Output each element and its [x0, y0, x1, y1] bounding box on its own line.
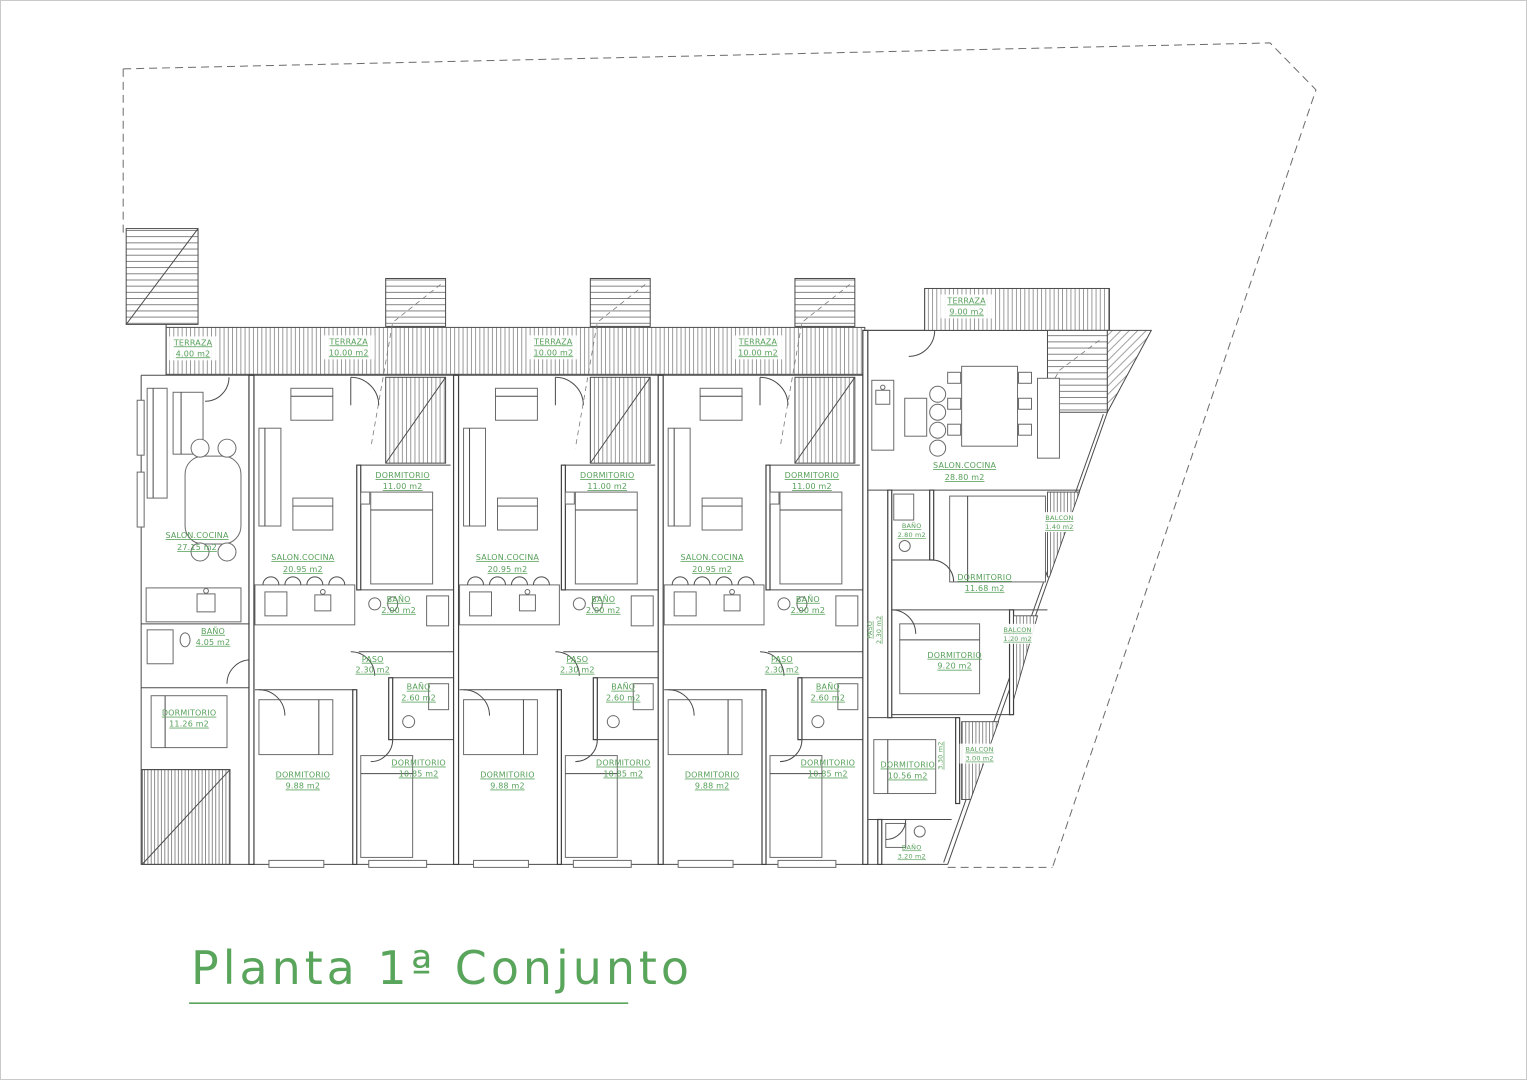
room-label-paso: PASO [771, 655, 793, 664]
salon-furniture [464, 388, 538, 530]
room-area-bano2: 2.60 m2 [401, 694, 436, 703]
bedroom-bottom-right [565, 740, 617, 858]
room-area-terraza: 9.00 m2 [949, 307, 984, 316]
room-area-bano2: 2.60 m2 [606, 694, 641, 703]
kitchen [664, 577, 764, 625]
kitchen [255, 577, 355, 625]
room-label-terraza: TERRAZA [173, 338, 213, 347]
room-label-bano1: BAÑO [387, 594, 411, 604]
window [573, 860, 631, 867]
room-area-salon: 20.95 m2 [488, 565, 528, 574]
room-label-bano2: BAÑO [816, 682, 840, 692]
room-label-dormitorio2: DORMITORIO [276, 771, 330, 780]
stair-box [795, 278, 855, 326]
room-label-salon: SALON.COCINA [271, 553, 334, 562]
page-title: Planta 1ª Conjunto [191, 941, 693, 995]
right-salon-furniture [872, 366, 1060, 458]
room-label-dormitorio3: DORMITORIO [391, 759, 445, 768]
room-label-paso: PASO [362, 655, 384, 664]
entry-door-arc [909, 330, 935, 356]
room-area-balcon3: 3.00 m2 [965, 755, 993, 763]
room-label-dormitorio2: DORMITORIO [685, 771, 739, 780]
room-area-dormitorio1: 11.68 m2 [965, 584, 1005, 593]
corridor-wall [888, 490, 892, 718]
room-label-dormitorio2: DORMITORIO [480, 771, 534, 780]
room-area-dormitorio2: 9.88 m2 [490, 782, 525, 791]
room-area-dormitorio3: 10.56 m2 [888, 772, 928, 781]
room-label-dormitorio3: DORMITORIO [801, 759, 855, 768]
room-area-dormitorio3: 10.85 m2 [399, 770, 439, 779]
room-area-dormitorio2: 9.88 m2 [695, 782, 730, 791]
window [474, 860, 529, 867]
room-area-paso: 2.30 m2 [765, 666, 800, 675]
room-label-terraza: TERRAZA [738, 337, 778, 346]
room-label-dormitorio1: DORMITORIO [785, 471, 839, 480]
room-label-dormitorio1: DORMITORIO [957, 573, 1011, 582]
room-label-bano2: BAÑO [407, 682, 431, 692]
room-area-pasillo: 3.30 m2 [937, 741, 945, 769]
bathroom [141, 624, 251, 684]
salon-furniture [668, 388, 742, 530]
room-area-salon: 20.95 m2 [692, 565, 732, 574]
unit-1: SALON.COCINA 27.15 m2 BAÑO 4.05 m2 DORMI… [141, 336, 251, 769]
room-label-salon: SALON.COCINA [476, 553, 539, 562]
room-area-paso: 2.30 m2 [560, 666, 595, 675]
room-label-terraza: TERRAZA [533, 337, 573, 346]
room-label-balcon2: BALCON [1003, 626, 1031, 634]
room-area-dormitorio1: 11.00 m2 [383, 482, 423, 491]
room-area-salon: 28.80 m2 [945, 473, 985, 482]
room-label-dormitorio: DORMITORIO [162, 709, 216, 718]
room-area-salon: 20.95 m2 [283, 565, 323, 574]
room-label-dormitorio1: DORMITORIO [375, 471, 429, 480]
room-area-dormitorio2: 9.20 m2 [937, 662, 972, 671]
room-area-terraza: 10.00 m2 [533, 348, 573, 357]
room-area-bano1: 2.80 m2 [898, 531, 926, 539]
window [137, 400, 144, 455]
stair-box [590, 278, 650, 326]
room-label-paso: PASO [866, 621, 874, 639]
entry-door-arc [760, 377, 788, 405]
room-label-dormitorio1: DORMITORIO [580, 471, 634, 480]
room-label-terraza: TERRAZA [946, 296, 986, 305]
drawing-sheet: SALON.COCINA 27.15 m2 BAÑO 4.05 m2 DORMI… [0, 0, 1527, 1080]
room-area-terraza: 4.00 m2 [176, 349, 211, 358]
room-label-paso: PASO [566, 655, 588, 664]
kitchen [146, 588, 241, 622]
room-area-bano1: 2.00 m2 [791, 606, 826, 615]
room-area-dormitorio1: 11.00 m2 [792, 482, 832, 491]
room-area-dormitorio1: 11.00 m2 [587, 482, 627, 491]
kitchen [460, 577, 560, 625]
stair-right-return [1107, 330, 1151, 412]
room-area-salon: 27.15 m2 [177, 543, 217, 552]
window [778, 860, 836, 867]
stair-bottom-left [142, 770, 230, 865]
room-label-bano: BAÑO [201, 626, 225, 636]
drawing-title: Planta 1ª Conjunto [189, 941, 693, 1003]
room-label-terraza: TERRAZA [329, 337, 369, 346]
room-area-paso: 2.30 m2 [355, 666, 390, 675]
room-label-balcon3: BALCON [966, 746, 994, 754]
room-area-dormitorio3: 10.85 m2 [808, 770, 848, 779]
room-area-terraza: 10.00 m2 [738, 348, 778, 357]
room-area-balcon1: 1.40 m2 [1045, 523, 1073, 531]
floor-plan-canvas: SALON.COCINA 27.15 m2 BAÑO 4.05 m2 DORMI… [1, 1, 1526, 1079]
room-area-dormitorio: 11.26 m2 [169, 720, 209, 729]
room-area-dormitorio3: 10.85 m2 [603, 770, 643, 779]
room-area-bano: 4.05 m2 [196, 638, 231, 647]
room-label-dormitorio2: DORMITORIO [927, 651, 981, 660]
bedroom-bottom-right [361, 740, 413, 858]
room-label-bano1: BAÑO [591, 594, 615, 604]
bedroom-bottom-right [770, 740, 822, 858]
room-area-dormitorio2: 9.88 m2 [286, 782, 321, 791]
room-area-bano2: 3.20 m2 [898, 852, 926, 860]
room-label-bano1: BAÑO [796, 594, 820, 604]
room-label-salon: SALON.COCINA [165, 531, 228, 540]
window [369, 860, 427, 867]
room-area-paso: 2.30 m2 [875, 616, 883, 644]
salon-furniture [259, 388, 333, 530]
room-area-balcon2: 1.20 m2 [1003, 635, 1031, 643]
room-label-salon: SALON.COCINA [681, 553, 744, 562]
stair-box [386, 278, 446, 326]
room-label-dormitorio3: DORMITORIO [880, 761, 934, 770]
window [269, 860, 324, 867]
party-wall [658, 375, 663, 864]
entry-door-arc [555, 377, 583, 405]
room-label-bano1: BAÑO [902, 521, 922, 530]
balcony-1 [1047, 492, 1079, 577]
room-area-bano1: 2.00 m2 [586, 606, 621, 615]
window [137, 472, 144, 527]
entry-door-arc [351, 377, 379, 405]
room-area-terraza: 10.00 m2 [329, 348, 369, 357]
room-label-bano2: BAÑO [902, 842, 922, 851]
entry-door-arc [205, 377, 229, 401]
party-wall [249, 375, 254, 864]
room-label-salon: SALON.COCINA [933, 461, 996, 470]
right-unit: TERRAZA 9.00 m2 SALON.COCINA 28.80 m2 PA… [863, 288, 1151, 864]
party-wall [454, 375, 459, 864]
window [678, 860, 733, 867]
room-area-bano2: 2.60 m2 [811, 694, 846, 703]
room-area-bano1: 2.00 m2 [381, 606, 416, 615]
room-label-bano2: BAÑO [611, 682, 635, 692]
room-label-balcon1: BALCON [1045, 514, 1073, 522]
room-label-dormitorio3: DORMITORIO [596, 759, 650, 768]
party-wall [863, 330, 868, 864]
